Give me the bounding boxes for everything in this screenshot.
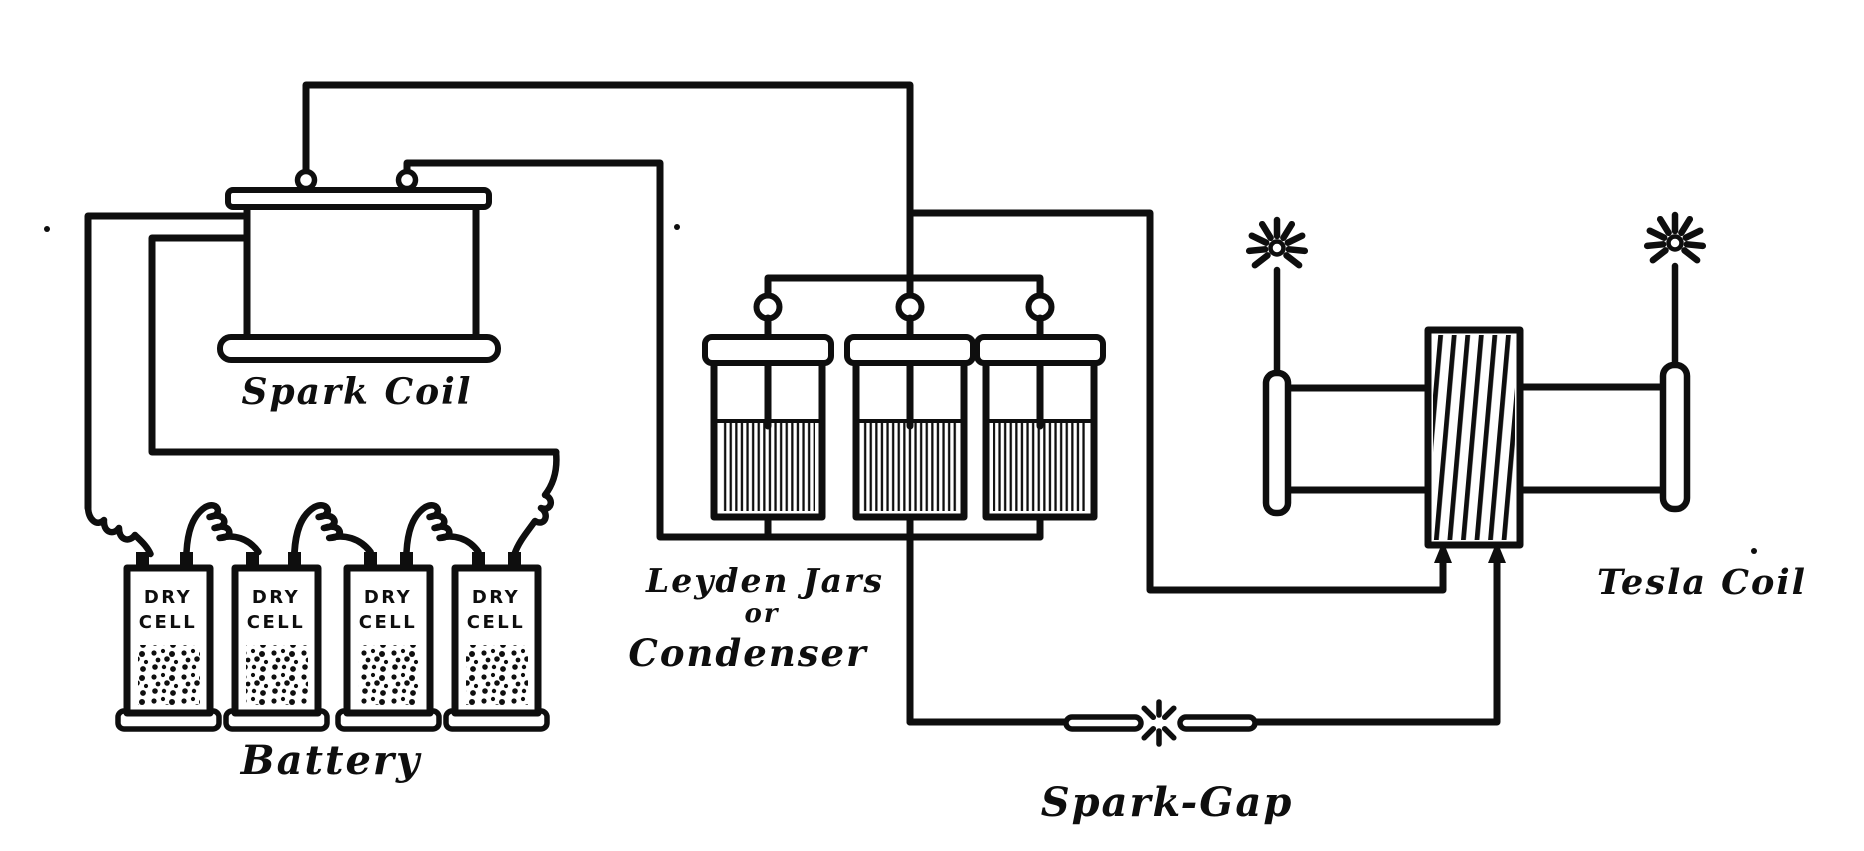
cell-text-line2: CELL [467,612,525,633]
leyden-jar-3 [977,296,1103,518]
battery-right-lead-curl [515,452,557,554]
dry-cell-4: DRY CELL [446,552,547,729]
tesla-coil: Tesla Coil [1249,215,1807,603]
condenser-label-line2: or [744,599,779,629]
cell-stipple [358,645,420,705]
ink-speck [44,226,50,232]
cell-text-line1: DRY [364,587,412,608]
discharge-spark-icon-right [1647,215,1703,260]
secondary-electrode-left [1266,373,1288,513]
ink-speck [674,224,680,230]
spark-icon [1144,702,1174,744]
jar-lid [847,337,973,363]
jar-lid [977,337,1103,363]
ink-speck [1751,548,1757,554]
spark-gap: Spark-Gap [1041,702,1294,826]
jar-foil-hatch [721,421,815,511]
cell-text-line1: DRY [252,587,300,608]
leyden-jar-1 [705,296,831,518]
cell-text-line2: CELL [247,612,305,633]
spark-gap-electrode-right [1180,717,1255,729]
wire-battery-left-lead [88,216,248,508]
cell-text-line1: DRY [144,587,192,608]
battery: DRY CELL DRY CELL DRY CELL [118,552,547,784]
cell-stipple [466,645,528,705]
jar-lid [705,337,831,363]
spark-coil-body [247,205,476,339]
dry-cell-3: DRY CELL [338,552,439,729]
condenser-label-line1: Leyden Jars [645,561,884,600]
spark-coil-base [220,337,498,360]
battery-label: Battery [240,737,422,784]
battery-jumper-wire [295,505,371,552]
condenser-label-line3: Condenser [628,631,868,675]
wire-spark-gap-to-primary [1255,556,1497,722]
jar-foil-hatch [993,421,1087,511]
spark-gap-label: Spark-Gap [1041,779,1294,826]
spark-coil-terminal-right [399,172,416,189]
diagram-page: Spark Coil DRY CELL DRY CELL [0,0,1864,851]
jar-top-bus [768,278,1040,296]
battery-left-lead-curl [88,506,151,554]
battery-jumper-wire [407,505,479,552]
spark-coil-terminal-left [298,172,315,189]
cell-stipple [138,645,200,705]
dry-cell-2: DRY CELL [226,552,327,729]
dry-cell-1: DRY CELL [118,552,219,729]
cell-text-line2: CELL [359,612,417,633]
spark-gap-electrode-left [1066,717,1141,729]
circuit-diagram: Spark Coil DRY CELL DRY CELL [0,0,1864,851]
spark-coil-lid [228,190,489,207]
condenser: Leyden Jars or Condenser [628,296,1103,676]
cell-text-line1: DRY [472,587,520,608]
battery-jumper-wire [187,505,259,552]
spark-coil-label: Spark Coil [242,371,473,413]
primary-coil-winding-hatch [1433,335,1515,540]
spark-coil: Spark Coil [220,172,498,414]
cell-stipple [246,645,308,705]
leyden-jar-2 [847,296,973,518]
discharge-spark-icon-left [1249,220,1305,265]
jar-foil-hatch [863,421,957,511]
cell-text-line2: CELL [139,612,197,633]
secondary-electrode-right [1663,365,1687,509]
tesla-coil-label: Tesla Coil [1597,562,1807,603]
